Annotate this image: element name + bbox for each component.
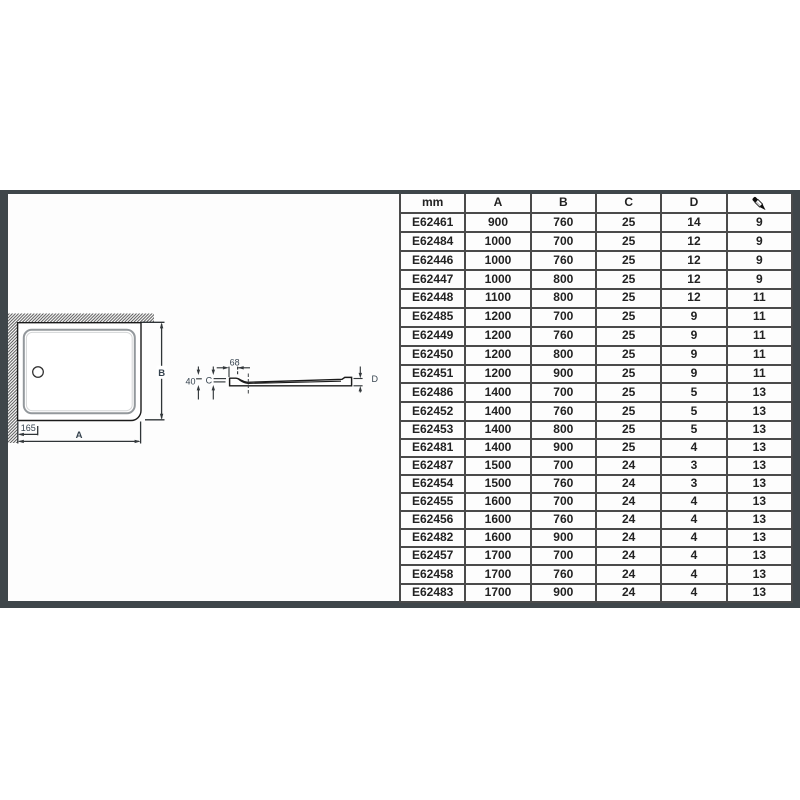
svg-text:A: A — [76, 430, 83, 441]
svg-text:165: 165 — [21, 423, 36, 433]
svg-text:68: 68 — [230, 358, 240, 368]
svg-text:D: D — [372, 374, 379, 384]
svg-text:40: 40 — [185, 377, 195, 387]
svg-text:B: B — [158, 368, 165, 379]
svg-text:C: C — [206, 376, 213, 386]
